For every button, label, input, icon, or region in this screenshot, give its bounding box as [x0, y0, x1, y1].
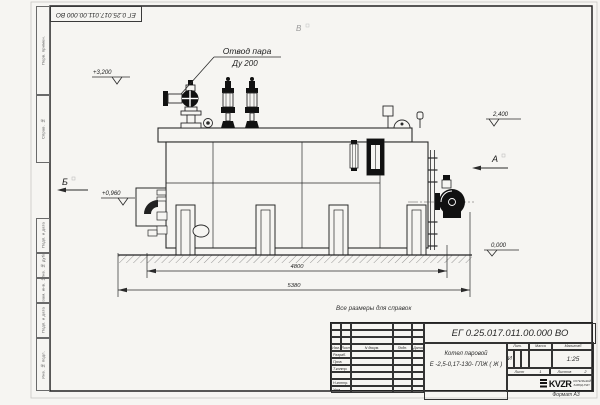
row-prov: Пров.: [331, 358, 351, 365]
deck-right-fittings: [383, 106, 423, 128]
callout-line1: Отвод пара: [223, 46, 272, 56]
col-header-list: Лист: [341, 344, 351, 351]
sheet-value: 1: [539, 370, 541, 374]
view-marker-a: А: [472, 154, 508, 170]
product-name-line2: Е -2,5-0,17-130- ГЛЖ ( Ж ): [430, 360, 503, 371]
svg-text:5380: 5380: [288, 283, 302, 289]
col-header-doc: N докум.: [351, 344, 393, 351]
elevation-0960: +0,960: [101, 191, 135, 205]
view-marker-b: Б: [57, 177, 88, 192]
safety-valve-1: [221, 77, 235, 128]
view-marker-v: В: [296, 24, 309, 33]
drawing-sheet: Отвод пара Ду 200 +3,200 +0,960 2,400 0,…: [0, 0, 600, 400]
top-stamp-box: ЕГ 0.25.017.011.00.000 ВО: [50, 6, 142, 22]
margin-label-podp-data-1: Подп. и дата: [36, 218, 50, 253]
company-logo-cell: KVZR КОТЕЛЬНЫЙ ЗАВОД РЭП: [506, 375, 594, 392]
mass-value: [529, 350, 552, 368]
ground-hatch: [118, 256, 472, 264]
lit-value: И: [506, 350, 514, 368]
water-level-gauges: [350, 139, 384, 175]
reference-note: Все размеры для справок: [336, 305, 411, 312]
title-block-revision-table: Изм. Лист N докум. Подп. Дата Разраб. Пр…: [331, 323, 424, 392]
row-utv: Утв.: [331, 386, 351, 393]
elevation-0000: 0,000: [484, 243, 519, 256]
svg-text:Б: Б: [62, 177, 68, 187]
logo-text: KVZR: [549, 379, 572, 389]
logo-bars-icon: [540, 379, 547, 388]
format-note: Формат А3: [540, 392, 592, 398]
row-nkontr: Н.контр.: [331, 379, 351, 386]
safety-valve-2: [245, 77, 259, 128]
elevation-2400: 2,400: [486, 112, 521, 126]
dimension-5380: 5380: [118, 283, 470, 292]
lit-mass-scale-headers: Лит. Масса Масштаб: [506, 342, 594, 350]
col-header-date: Дата: [412, 344, 424, 351]
deck-round-fitting: [204, 119, 213, 128]
product-name: Котел паровой Е -2,5-0,17-130- ГЛЖ ( Ж ): [424, 342, 508, 400]
safety-valves: [221, 77, 259, 128]
title-block: Изм. Лист N докум. Подп. Дата Разраб. Пр…: [330, 322, 593, 391]
flag-valve-icon: [383, 106, 393, 116]
lit-mass-scale-values: И 1:25: [506, 350, 594, 368]
product-name-line1: Котел паровой: [444, 349, 487, 360]
svg-text:+0,960: +0,960: [102, 191, 121, 197]
scale-value: 1:25: [552, 350, 594, 368]
svg-text:В: В: [296, 24, 302, 33]
svg-text:+3,200: +3,200: [93, 70, 112, 76]
top-stamp-number: ЕГ 0.25.017.011.00.000 ВО: [56, 11, 136, 18]
margin-label-podp-data-2: Подп. и дата: [36, 303, 50, 338]
pin-fitting: [417, 112, 423, 119]
margin-label-inv-podl: Инв. № подл.: [36, 338, 50, 391]
front-access-box: [136, 188, 167, 236]
header-mass: Масса: [529, 342, 552, 350]
svg-text:А: А: [491, 154, 498, 164]
header-scale: Масштаб: [552, 342, 594, 350]
svg-text:4800: 4800: [291, 264, 305, 270]
header-lit: Лит.: [506, 342, 529, 350]
row-tkontr: Т.контр.: [331, 365, 351, 372]
steam-outlet-valve: [163, 80, 201, 128]
title-block-main: ЕГ 0.25.017.011.00.000 ВО Котел паровой …: [424, 323, 594, 392]
sheets-value: 2: [584, 370, 586, 374]
margin-label-perv-primen: Перв. примен.: [36, 6, 50, 95]
col-header-izm: Изм.: [331, 344, 341, 351]
row-razrab: Разраб.: [331, 351, 351, 358]
col-header-sign: Подп.: [393, 344, 412, 351]
margin-label-vzam-inv: Взам. инв. №: [36, 278, 50, 303]
burner-motor: [443, 207, 461, 218]
logo-subline2: ЗАВОД РЭП: [573, 384, 591, 387]
sheets-label: Листов: [558, 370, 572, 374]
manhole-ellipse: [193, 225, 209, 237]
ground: [118, 255, 472, 263]
margin-label-sprav-no: Справ. №: [36, 95, 50, 163]
svg-text:2,400: 2,400: [492, 112, 509, 118]
sheet-row: Лист 1 Листов 2: [506, 368, 594, 375]
doc-number: ЕГ 0.25.017.011.00.000 ВО: [424, 323, 596, 344]
margin-label-inv-dubl: Инв. № дубл.: [36, 253, 50, 278]
callout-line2: Ду 200: [231, 59, 258, 68]
svg-text:0,000: 0,000: [491, 243, 507, 249]
sheet-label: Лист: [515, 370, 525, 374]
elevation-3200: +3,200: [92, 70, 130, 84]
dimension-4800: 4800: [147, 264, 447, 273]
